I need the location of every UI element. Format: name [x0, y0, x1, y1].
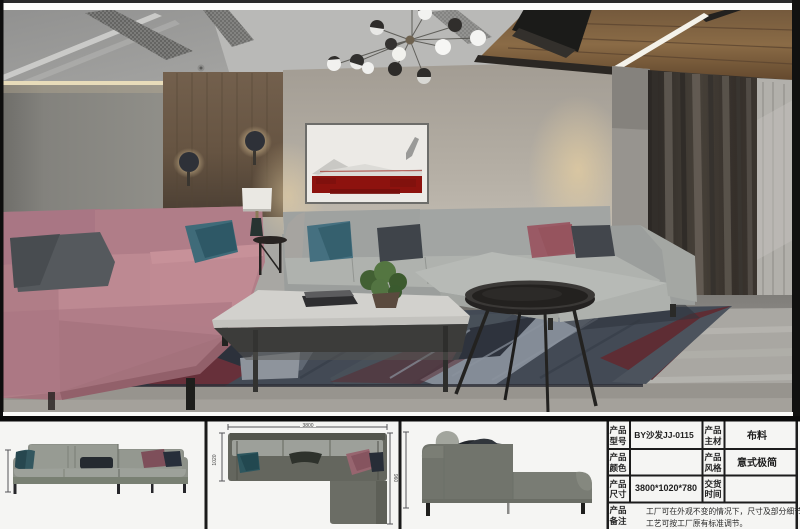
svg-text:BY沙发JJ-0115: BY沙发JJ-0115: [634, 430, 694, 440]
svg-text:3800*1020*780: 3800*1020*780: [635, 483, 697, 493]
svg-text:交货: 交货: [704, 479, 722, 489]
svg-text:产品: 产品: [704, 425, 722, 435]
svg-text:时间: 时间: [704, 489, 721, 499]
svg-text:产品: 产品: [704, 452, 722, 462]
svg-text:产品: 产品: [609, 425, 627, 435]
svg-text:工厂可在外观不变的情况下，尺寸及部分细节: 工厂可在外观不变的情况下，尺寸及部分细节: [646, 506, 800, 516]
svg-text:产品: 产品: [609, 452, 627, 462]
svg-text:型号: 型号: [609, 436, 627, 446]
svg-text:工艺可按工厂原有标准调节。: 工艺可按工厂原有标准调节。: [646, 518, 747, 528]
svg-text:产品: 产品: [609, 479, 627, 489]
svg-text:主材: 主材: [704, 436, 722, 446]
svg-text:风格: 风格: [704, 463, 722, 473]
svg-text:意式极简: 意式极简: [737, 456, 777, 469]
svg-text:3800: 3800: [302, 423, 313, 429]
svg-text:尺寸: 尺寸: [608, 489, 627, 499]
svg-text:备注: 备注: [608, 516, 627, 526]
svg-text:产品: 产品: [609, 505, 627, 515]
svg-text:1020: 1020: [212, 454, 218, 465]
svg-text:960: 960: [392, 474, 398, 483]
svg-text:颜色: 颜色: [609, 463, 627, 473]
svg-text:布料: 布料: [747, 429, 767, 442]
